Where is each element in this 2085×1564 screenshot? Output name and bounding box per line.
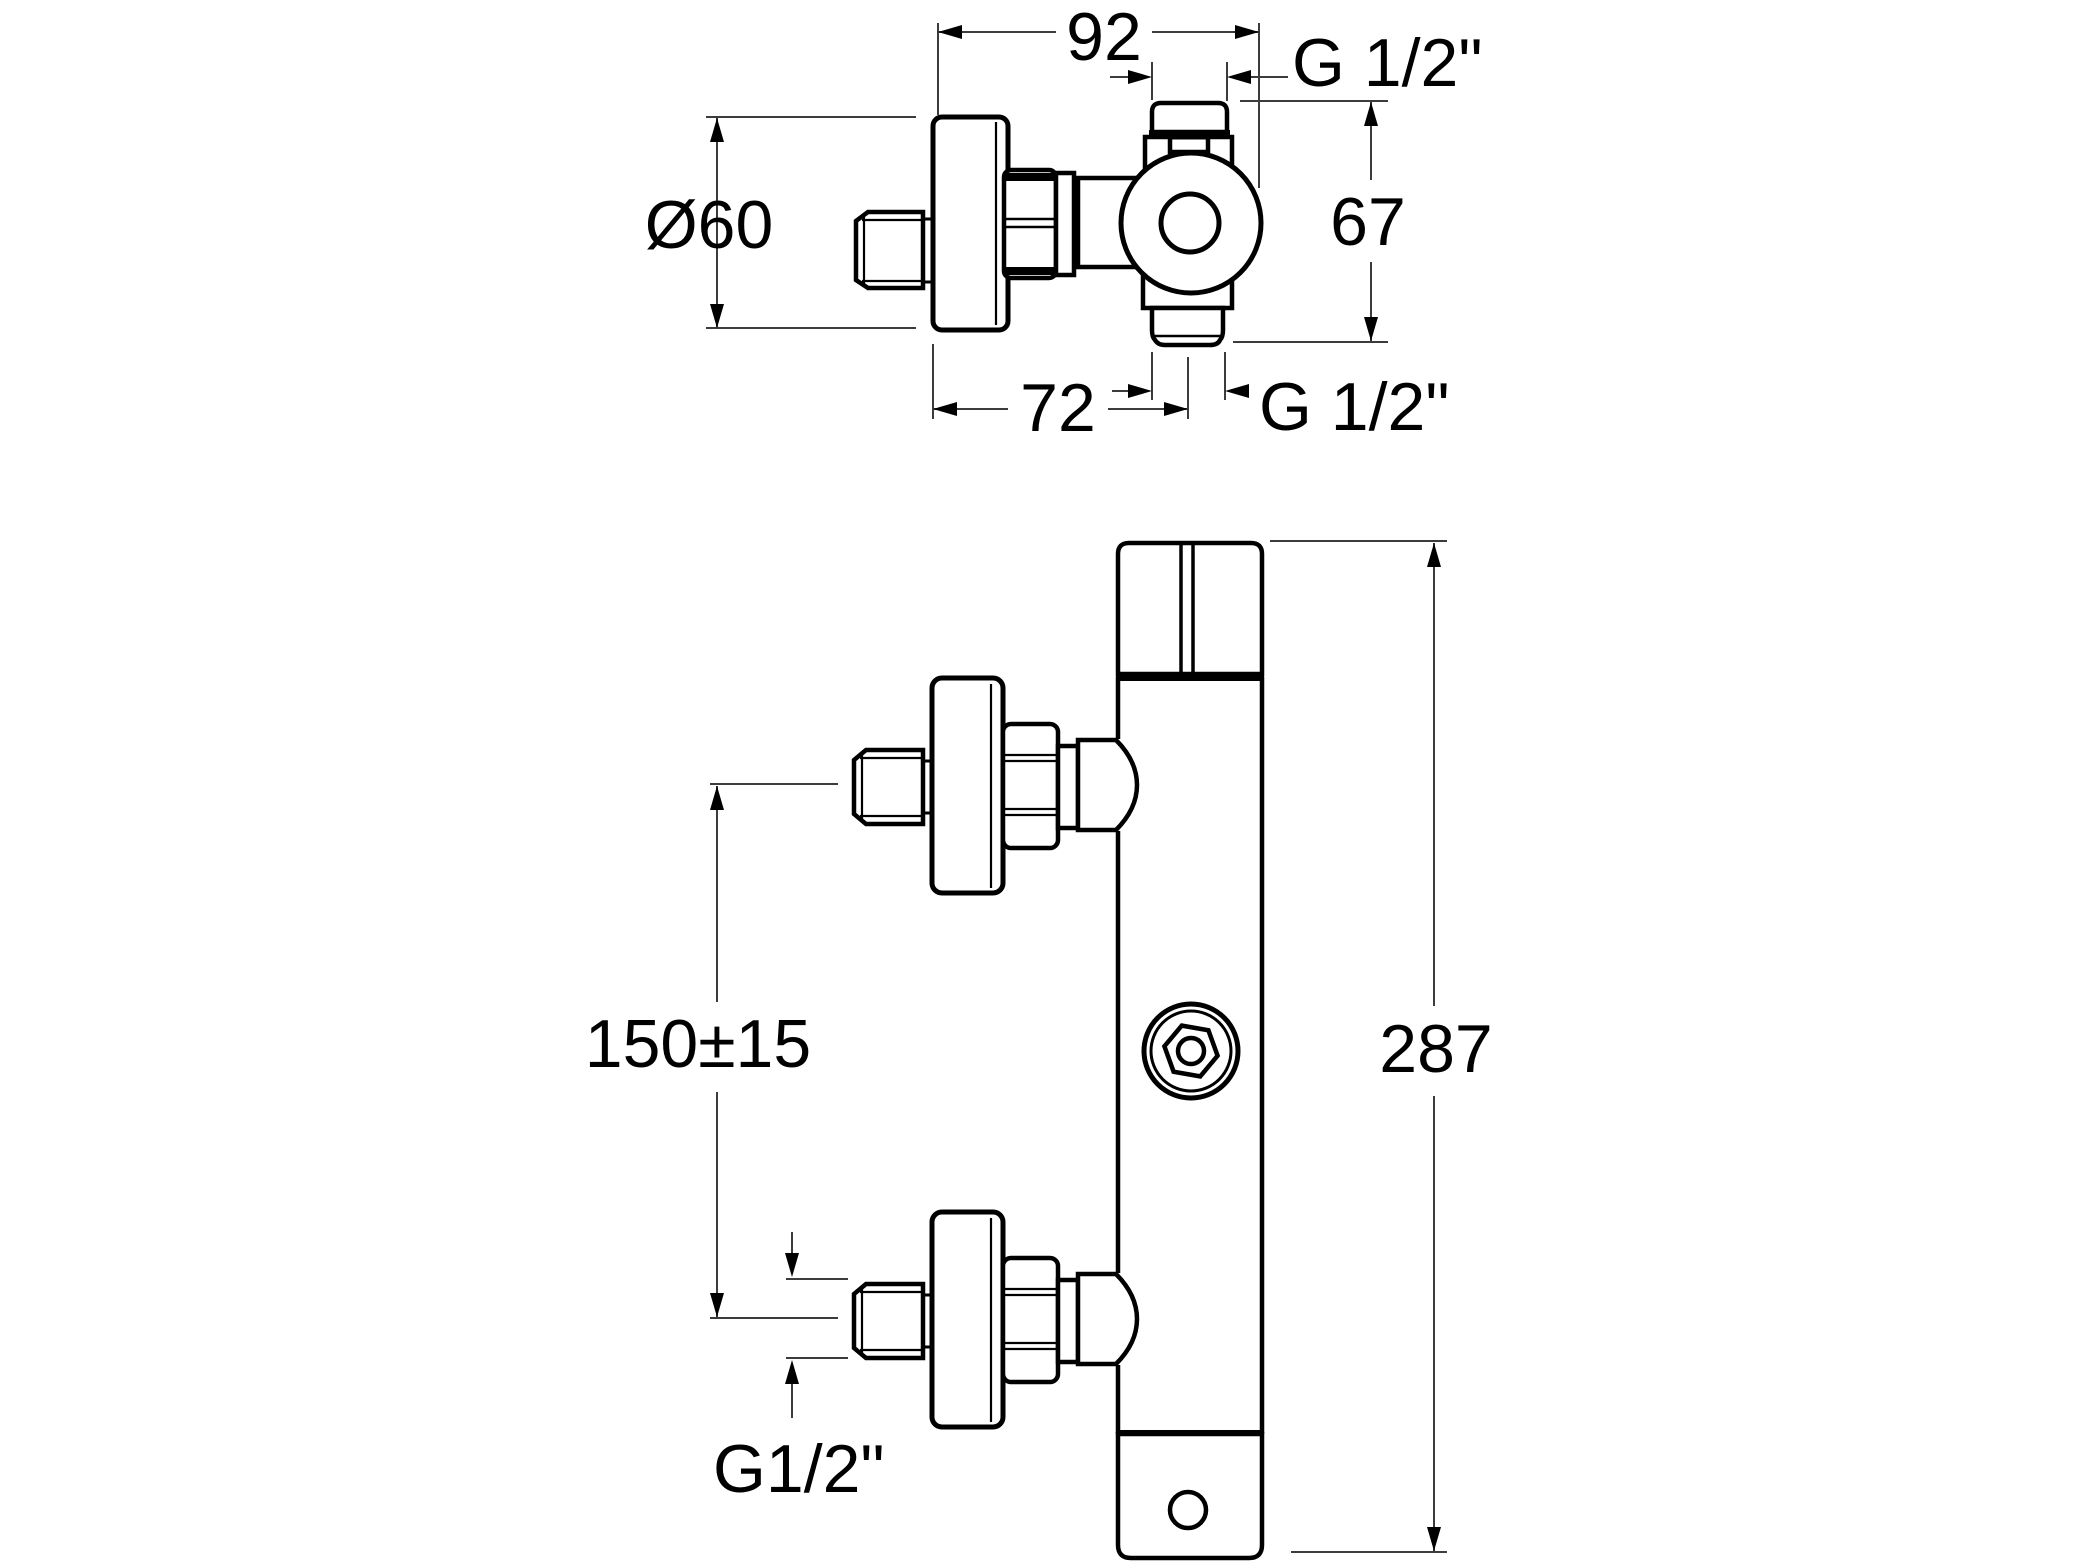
arrow-left-icon xyxy=(933,402,957,416)
top-view xyxy=(856,103,1261,345)
arrow-down-icon xyxy=(710,304,724,328)
dim-label-d60: Ø60 xyxy=(645,187,774,263)
drawing-canvas: 92 G 1/2" Ø60 67 72 G 1/2" 150±15 287 G1… xyxy=(0,0,2085,1564)
top-wall-nipple-icon xyxy=(856,212,923,288)
top-outlet-cap xyxy=(1152,308,1223,345)
arrow-up-icon xyxy=(1364,102,1378,126)
front-outlet-hole-icon xyxy=(1170,1492,1206,1528)
arrow-up-icon xyxy=(785,1360,799,1384)
dim-label-g12-front: G1/2" xyxy=(713,1431,885,1507)
dim-label-67: 67 xyxy=(1330,184,1406,260)
arrow-right-icon xyxy=(1235,25,1259,39)
arrow-right-icon xyxy=(1164,402,1188,416)
front-center-boss-icon xyxy=(1144,1004,1238,1098)
arrow-down-icon xyxy=(1427,1527,1441,1551)
top-hex-nut-icon xyxy=(1004,170,1056,278)
arrow-up-icon xyxy=(710,786,724,810)
arrow-down-icon xyxy=(710,1293,724,1317)
dim-label-92: 92 xyxy=(1066,0,1142,75)
front-view xyxy=(854,543,1264,1558)
top-push-button-circle xyxy=(1161,194,1219,252)
front-bottom-section xyxy=(1116,1434,1264,1558)
top-inlet-cap xyxy=(1149,103,1230,133)
dim-label-72: 72 xyxy=(1020,370,1096,446)
front-wall-union-lower xyxy=(854,1212,1137,1427)
dim-label-150: 150±15 xyxy=(585,1006,811,1082)
arrow-left-icon xyxy=(938,25,962,39)
arrow-left-icon xyxy=(1227,70,1251,84)
arrow-right-icon xyxy=(1128,384,1152,398)
dim-g12-bottom xyxy=(1112,352,1249,400)
dim-label-g12-top: G 1/2" xyxy=(1292,25,1482,101)
arrow-up-icon xyxy=(1427,543,1441,567)
front-wall-union-upper xyxy=(854,678,1137,893)
arrow-left-icon xyxy=(1225,384,1249,398)
dim-label-g12-bottom: G 1/2" xyxy=(1259,369,1449,445)
dim-label-287: 287 xyxy=(1379,1011,1492,1087)
front-top-cap xyxy=(1116,543,1264,677)
arrow-up-icon xyxy=(710,118,724,142)
top-washer xyxy=(1056,173,1074,275)
top-wall-flange xyxy=(933,117,1008,330)
arrow-down-icon xyxy=(1364,317,1378,341)
dim-g12-front xyxy=(785,1232,848,1418)
technical-drawing: 92 G 1/2" Ø60 67 72 G 1/2" 150±15 287 G1… xyxy=(0,0,2085,1564)
arrow-down-icon xyxy=(785,1253,799,1277)
